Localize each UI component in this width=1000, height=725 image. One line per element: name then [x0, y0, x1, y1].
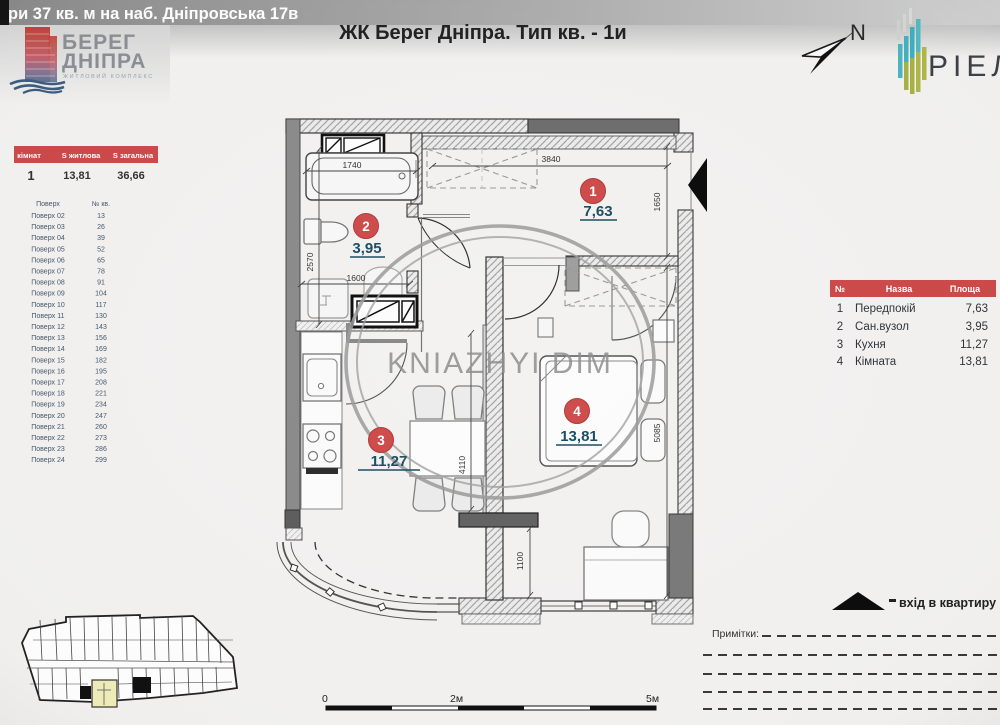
- svg-text:ЖИТЛОВИЙ КОМПЛЕКС: ЖИТЛОВИЙ КОМПЛЕКС: [63, 72, 154, 80]
- svg-text:7,63: 7,63: [583, 203, 612, 220]
- svg-text:1: 1: [589, 184, 597, 199]
- svg-text:Передпокій: Передпокій: [855, 303, 916, 315]
- svg-text:1: 1: [27, 168, 34, 183]
- svg-text:Сан.вузол: Сан.вузол: [855, 321, 909, 333]
- svg-text:1100: 1100: [515, 552, 525, 571]
- svg-text:299: 299: [95, 457, 107, 464]
- svg-text:Поверх 14: Поверх 14: [31, 346, 65, 353]
- svg-text:ДНІПРА: ДНІПРА: [62, 50, 146, 73]
- svg-text:Поверх 04: Поверх 04: [31, 235, 65, 242]
- svg-text:РІЕЛ: РІЕЛ: [928, 50, 1000, 83]
- svg-text:3: 3: [837, 339, 843, 351]
- svg-text:260: 260: [95, 424, 107, 431]
- svg-text:117: 117: [95, 302, 106, 309]
- svg-text:Поверх: Поверх: [36, 201, 60, 208]
- svg-text:2: 2: [362, 219, 370, 234]
- svg-text:2570: 2570: [305, 252, 315, 271]
- svg-text:№: №: [835, 284, 845, 294]
- svg-text:1650: 1650: [652, 192, 662, 211]
- svg-text:130: 130: [95, 313, 107, 320]
- svg-text:4: 4: [573, 404, 581, 419]
- svg-text:13,81: 13,81: [959, 356, 988, 368]
- svg-text:286: 286: [95, 446, 107, 453]
- svg-text:169: 169: [95, 346, 107, 353]
- svg-text:1740: 1740: [343, 160, 362, 170]
- svg-text:Поверх 15: Поверх 15: [31, 357, 65, 364]
- svg-text:3,95: 3,95: [966, 321, 988, 333]
- svg-text:Поверх 17: Поверх 17: [31, 380, 65, 387]
- svg-text:234: 234: [95, 402, 107, 409]
- svg-text:Назва: Назва: [886, 284, 914, 294]
- svg-text:78: 78: [97, 269, 105, 276]
- svg-text:26: 26: [97, 224, 105, 231]
- svg-text:0: 0: [322, 693, 328, 705]
- svg-text:182: 182: [95, 357, 107, 364]
- svg-text:Поверх 08: Поверх 08: [31, 280, 65, 287]
- svg-text:65: 65: [97, 257, 105, 264]
- svg-text:247: 247: [95, 413, 107, 420]
- svg-text:Поверх 21: Поверх 21: [31, 424, 65, 431]
- svg-text:Поверх 07: Поверх 07: [31, 269, 65, 276]
- svg-text:208: 208: [95, 380, 107, 387]
- svg-text:11,27: 11,27: [960, 339, 988, 351]
- svg-text:Поверх 10: Поверх 10: [31, 302, 65, 309]
- svg-text:36,66: 36,66: [117, 170, 145, 182]
- svg-text:Поверх 22: Поверх 22: [31, 435, 65, 442]
- svg-text:4110: 4110: [457, 456, 467, 475]
- svg-text:Площа: Площа: [950, 284, 981, 294]
- svg-text:273: 273: [95, 435, 107, 442]
- svg-text:кімнат: кімнат: [17, 151, 41, 160]
- svg-text:Поверх 05: Поверх 05: [31, 246, 65, 253]
- svg-text:13,81: 13,81: [63, 170, 91, 182]
- svg-text:5085: 5085: [652, 423, 662, 442]
- svg-text:195: 195: [95, 368, 107, 375]
- svg-text:4: 4: [837, 356, 844, 368]
- svg-text:Поверх 09: Поверх 09: [31, 291, 65, 298]
- svg-text:ЖК Берег Дніпра. Тип кв. - 1и: ЖК Берег Дніпра. Тип кв. - 1и: [338, 22, 626, 44]
- svg-text:Поверх 23: Поверх 23: [31, 446, 65, 453]
- svg-text:Поверх 18: Поверх 18: [31, 391, 65, 398]
- svg-text:2: 2: [837, 321, 843, 333]
- svg-text:Поверх 24: Поверх 24: [31, 457, 65, 464]
- svg-text:вхід в квартиру: вхід в квартиру: [899, 596, 996, 610]
- svg-text:ри 37 кв. м на наб. Дніпровськ: ри 37 кв. м на наб. Дніпровська 17в: [8, 5, 298, 23]
- svg-text:Примітки:: Примітки:: [712, 628, 759, 640]
- svg-text:2м: 2м: [450, 693, 463, 705]
- svg-text:1600: 1600: [347, 273, 366, 283]
- svg-text:Поверх 03: Поверх 03: [31, 224, 65, 231]
- svg-text:13: 13: [97, 213, 105, 220]
- svg-text:3,95: 3,95: [352, 240, 381, 257]
- svg-text:KNIAZHYI DIM: KNIAZHYI DIM: [387, 347, 613, 380]
- svg-text:7,63: 7,63: [966, 303, 988, 315]
- svg-text:№ кв.: № кв.: [92, 201, 110, 208]
- svg-text:N: N: [850, 20, 866, 45]
- svg-text:143: 143: [95, 324, 107, 331]
- svg-text:13,81: 13,81: [560, 428, 598, 445]
- svg-text:91: 91: [97, 280, 105, 287]
- svg-text:11,27: 11,27: [371, 453, 408, 470]
- svg-text:52: 52: [97, 246, 105, 253]
- svg-text:Поверх 19: Поверх 19: [31, 402, 65, 409]
- svg-text:104: 104: [95, 291, 107, 298]
- svg-text:Поверх 11: Поверх 11: [32, 313, 65, 320]
- svg-text:5м: 5м: [646, 693, 659, 705]
- svg-text:Поверх 12: Поверх 12: [31, 324, 65, 331]
- svg-text:Поверх 20: Поверх 20: [31, 413, 65, 420]
- svg-text:Поверх 13: Поверх 13: [31, 335, 65, 342]
- svg-text:1: 1: [837, 303, 843, 315]
- svg-text:39: 39: [97, 235, 105, 242]
- svg-text:Поверх 16: Поверх 16: [31, 368, 65, 375]
- svg-text:Поверх 06: Поверх 06: [31, 257, 65, 264]
- svg-text:Поверх 02: Поверх 02: [31, 213, 65, 220]
- svg-text:Кухня: Кухня: [855, 339, 886, 351]
- svg-text:S житлова: S житлова: [62, 151, 101, 160]
- svg-text:Кімната: Кімната: [855, 356, 897, 368]
- svg-text:156: 156: [95, 335, 107, 342]
- svg-text:3: 3: [377, 433, 385, 448]
- svg-text:221: 221: [95, 391, 107, 398]
- svg-text:S загальна: S загальна: [113, 151, 154, 160]
- svg-text:3840: 3840: [542, 154, 561, 164]
